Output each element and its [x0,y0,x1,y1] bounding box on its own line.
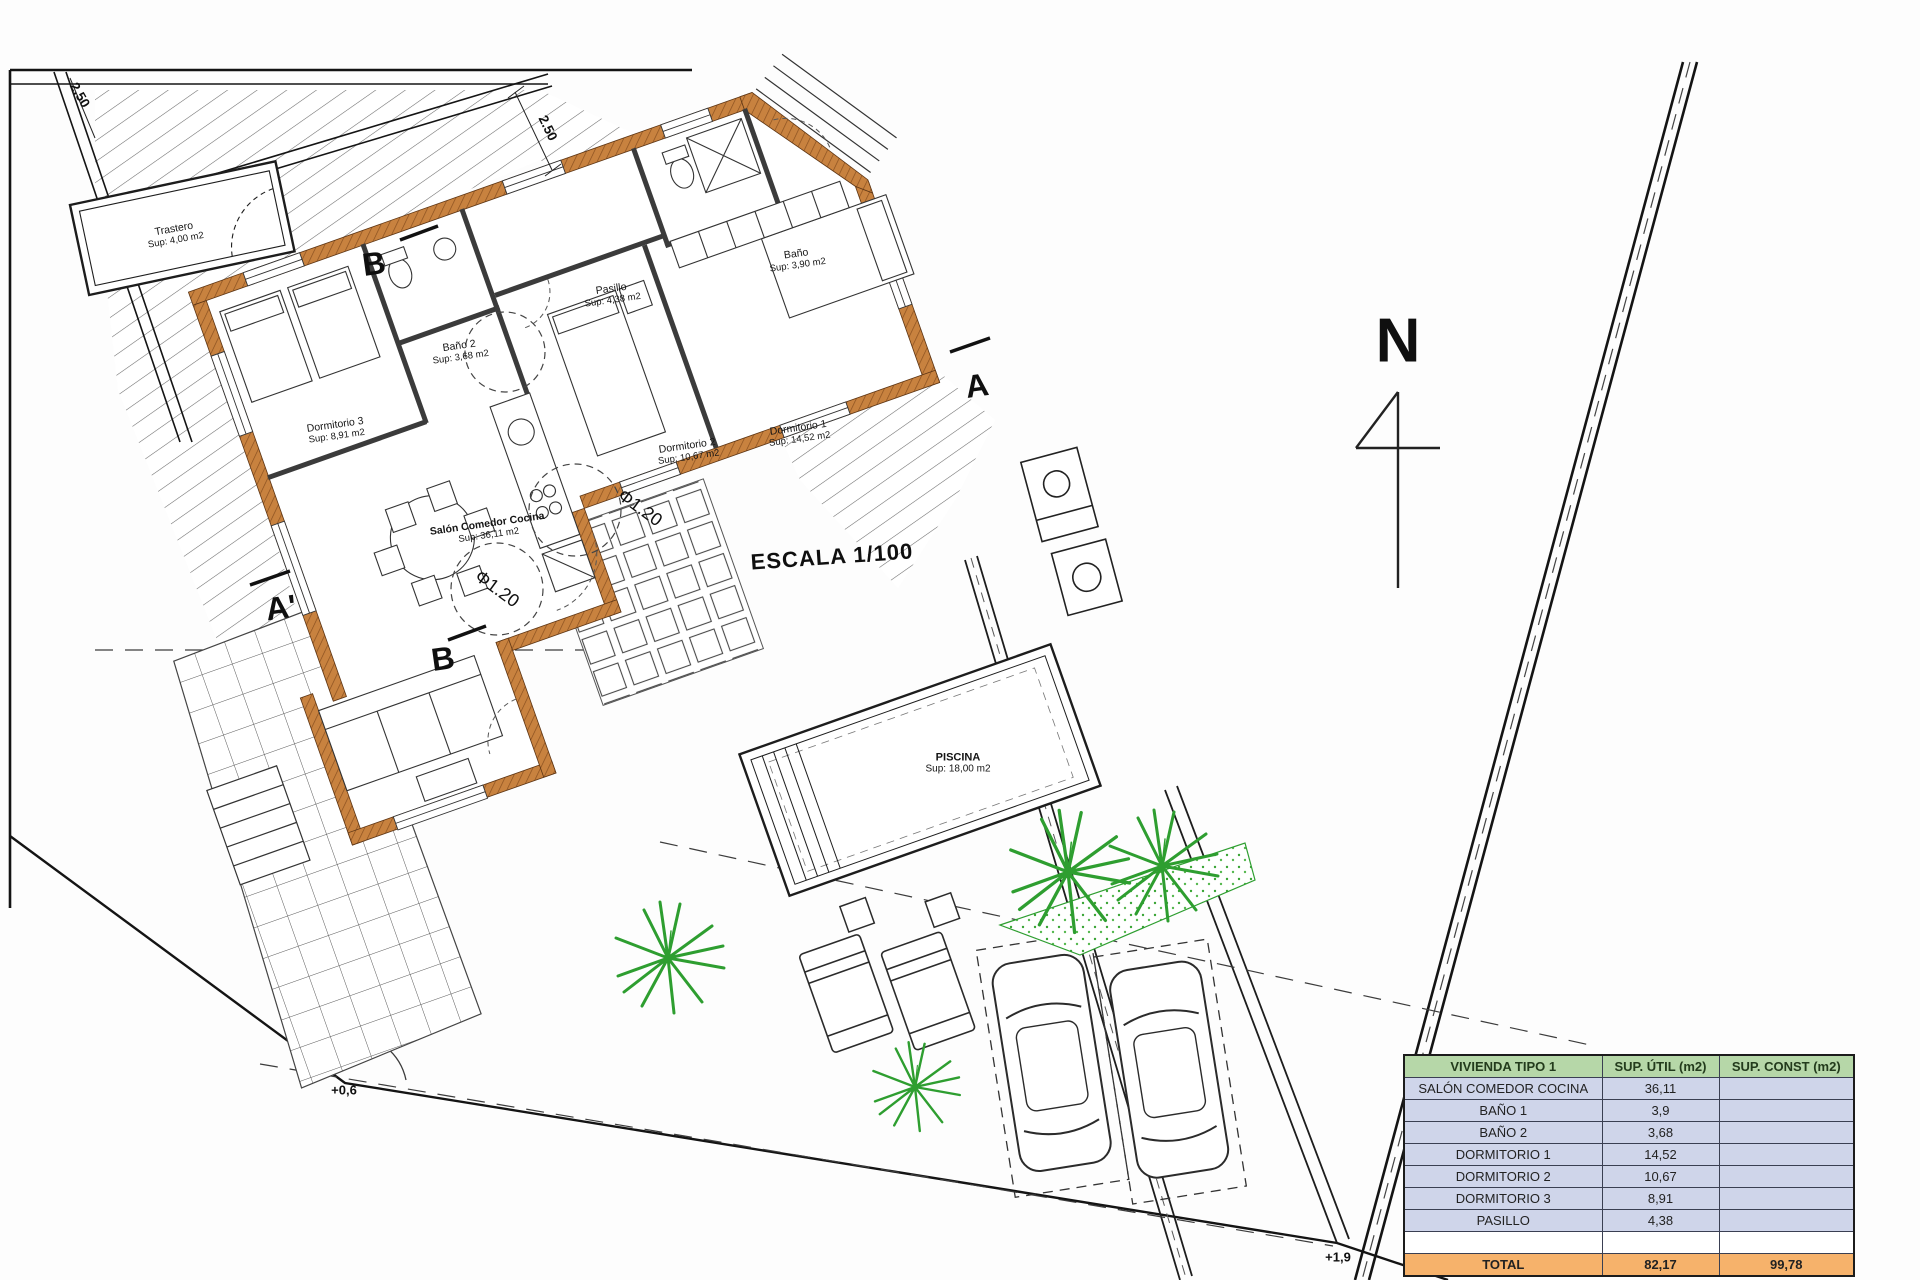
table-total-row: TOTAL82,1799,78 [1404,1254,1854,1277]
table-header-row: VIVIENDA TIPO 1 SUP. ÚTIL (m2) SUP. CONS… [1404,1055,1854,1078]
room-label-piscina: PISCINA Sup: 18,00 m2 [925,751,990,775]
table-header-sup-util: SUP. ÚTIL (m2) [1602,1055,1719,1078]
table-row: DORMITORIO 210,67 [1404,1166,1854,1188]
palm-2 [873,1042,959,1131]
car-2 [1107,959,1231,1181]
section-marker-b-top: B [360,244,388,284]
areas-table: VIVIENDA TIPO 1 SUP. ÚTIL (m2) SUP. CONS… [1403,1054,1855,1277]
plan-sheet: Trastero Sup: 4,00 m2 Pasillo Sup: 4,38 … [0,0,1920,1280]
table-row: PASILLO4,38 [1404,1210,1854,1232]
pool [739,644,1100,896]
table-row: DORMITORIO 114,52 [1404,1144,1854,1166]
section-marker-a: A [963,366,991,406]
north-letter: N [1376,306,1421,377]
room-area: Sup: 18,00 m2 [925,764,990,775]
table-header-sup-const: SUP. CONST (m2) [1719,1055,1854,1078]
north-arrow [1356,392,1440,588]
car-1 [990,952,1114,1174]
table-row: DORMITORIO 38,91 [1404,1188,1854,1210]
sun-loungers [788,870,996,1077]
palm-1 [616,902,724,1013]
section-marker-a-prime: A' [263,588,299,629]
parking-area [976,914,1246,1222]
level-label-road: +1,9 [1325,1250,1351,1265]
room-name: PISCINA [925,751,990,763]
table-header-vivienda: VIVIENDA TIPO 1 [1404,1055,1602,1078]
table-row: SALÓN COMEDOR COCINA36,11 [1404,1078,1854,1100]
level-label-entrance: +0,6 [331,1083,357,1098]
table-row: BAÑO 23,68 [1404,1122,1854,1144]
section-marker-b-bottom: B [429,639,457,679]
table-empty-row [1404,1232,1854,1254]
utility-boxes [1021,446,1122,617]
table-row: BAÑO 13,9 [1404,1100,1854,1122]
